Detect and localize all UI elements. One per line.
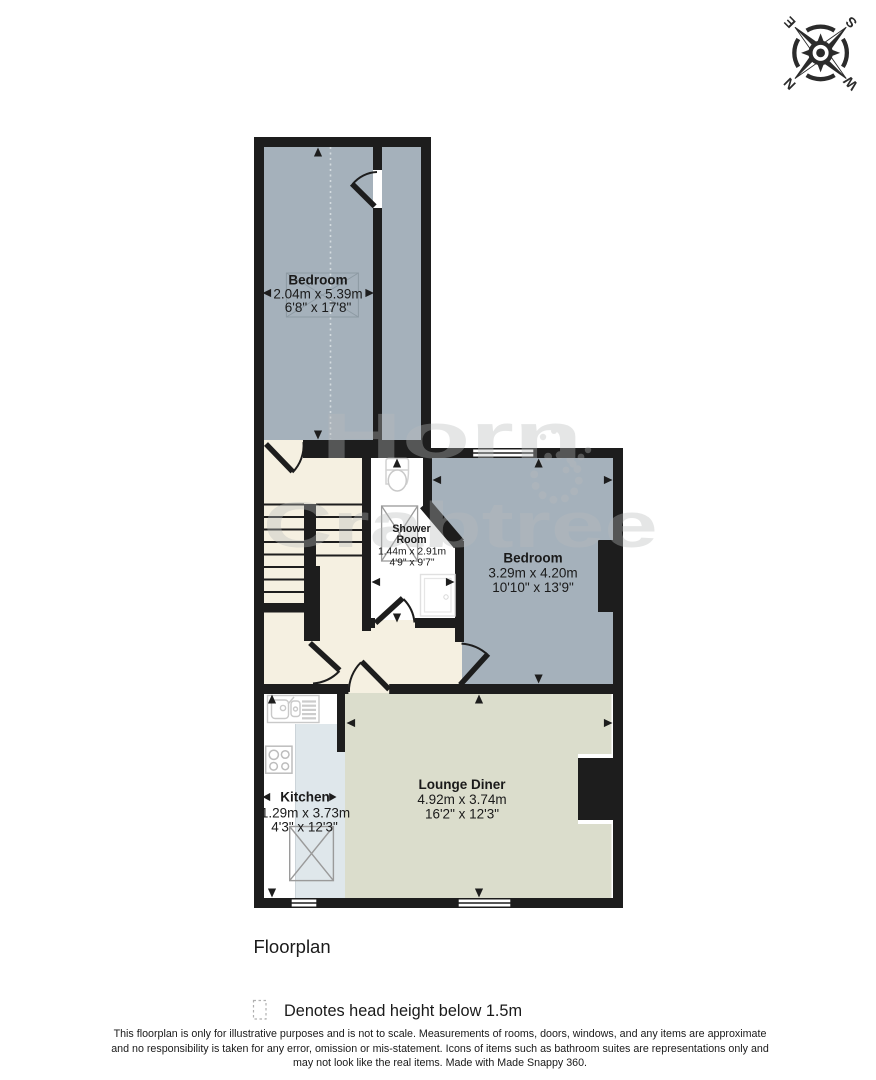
svg-text:Bedroom: Bedroom — [503, 551, 562, 566]
svg-text:Denotes head height below 1.5m: Denotes head height below 1.5m — [284, 1002, 522, 1020]
svg-text:10'10" x 13'9": 10'10" x 13'9" — [492, 580, 574, 595]
svg-text:6'8" x 17'8": 6'8" x 17'8" — [285, 300, 352, 315]
svg-text:3.29m x 4.20m: 3.29m x 4.20m — [488, 566, 577, 581]
svg-text:4'9" x 9'7": 4'9" x 9'7" — [389, 558, 434, 569]
svg-text:Floorplan: Floorplan — [254, 936, 331, 957]
svg-text:Bedroom: Bedroom — [288, 273, 347, 288]
svg-text:Room: Room — [396, 534, 426, 546]
svg-text:1.44m x 2.91m: 1.44m x 2.91m — [378, 547, 446, 558]
svg-text:may not look like the real ite: may not look like the real items. Made w… — [293, 1057, 587, 1069]
svg-text:Crabtree: Crabtree — [263, 490, 658, 561]
svg-text:1.29m x 3.73m: 1.29m x 3.73m — [261, 806, 350, 821]
svg-text:Shower: Shower — [392, 523, 430, 535]
svg-text:16'2" x 12'3": 16'2" x 12'3" — [425, 807, 499, 822]
svg-text:and no responsibility is taken: and no responsibility is taken for any e… — [111, 1043, 769, 1055]
svg-text:Lounge Diner: Lounge Diner — [419, 777, 507, 792]
svg-text:4'3" x 12'3": 4'3" x 12'3" — [271, 820, 338, 835]
svg-text:4.92m x 3.74m: 4.92m x 3.74m — [417, 792, 506, 807]
svg-text:This floorplan is only for ill: This floorplan is only for illustrative … — [114, 1028, 767, 1040]
svg-text:Kitchen: Kitchen — [280, 790, 330, 805]
svg-text:S: S — [842, 13, 860, 31]
